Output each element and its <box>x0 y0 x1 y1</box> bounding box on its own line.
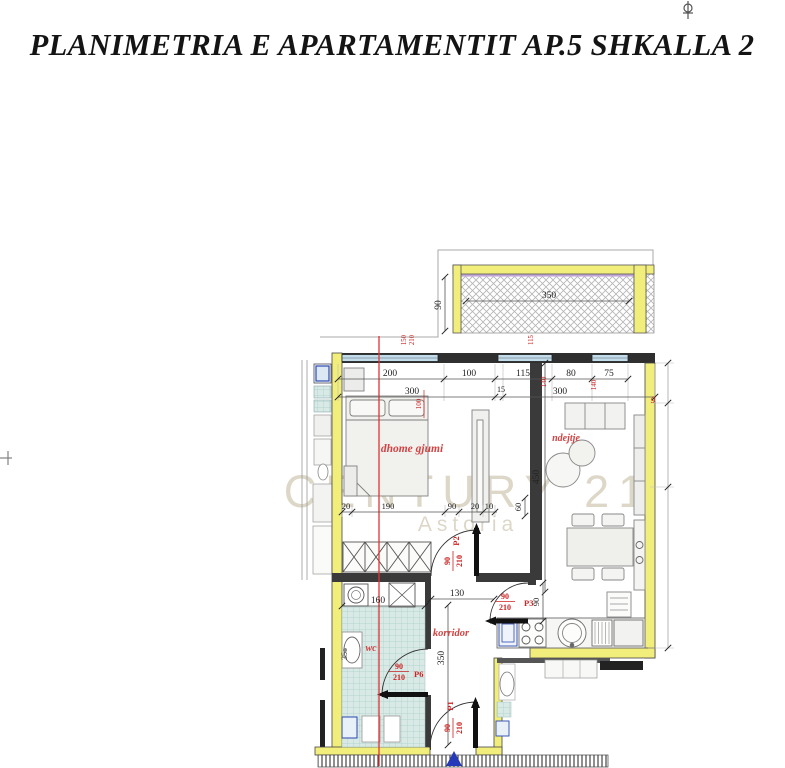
dim: 350 <box>437 651 447 666</box>
chair <box>602 568 624 580</box>
svg-text:P2: P2 <box>451 536 461 545</box>
dim: 350 <box>542 291 557 301</box>
balcony-wall-top <box>453 265 654 274</box>
window-mark: 210 <box>409 334 416 345</box>
dim: 190 <box>382 501 395 511</box>
window-mark: 140 <box>590 379 598 390</box>
dim: 160 <box>371 596 386 606</box>
dim: 90 <box>448 501 457 511</box>
dim: 35 <box>340 652 349 660</box>
dim: 300 <box>553 387 568 397</box>
room-label-corridor: korridor <box>433 628 470 639</box>
boiler-unit <box>607 592 631 617</box>
svg-text:P1: P1 <box>445 701 455 710</box>
dim: 130 <box>450 589 465 599</box>
door-label-P1: P1 90 210 <box>443 701 464 738</box>
wall-cabinet <box>634 415 645 515</box>
svg-text:90: 90 <box>443 557 452 565</box>
dining-table <box>567 528 633 566</box>
dim: 115 <box>516 369 530 379</box>
balcony-wall-left <box>453 265 461 333</box>
dim: 80 <box>566 369 576 379</box>
room-label-wc: wc <box>365 643 377 654</box>
svg-text:90: 90 <box>501 592 509 601</box>
floor-plan-page: PLANIMETRIA E APARTAMENTIT AP.5 SHKALLA … <box>0 0 785 768</box>
tall-unit <box>634 520 645 590</box>
chair <box>602 514 624 526</box>
balcony-wall-right <box>634 265 646 333</box>
dim: 300 <box>405 387 420 397</box>
room-label-bedroom: dhome gjumi <box>381 443 444 455</box>
window-mark: 140 <box>540 376 548 387</box>
floor-plan-drawing: PLANIMETRIA E APARTAMENTIT AP.5 SHKALLA … <box>0 0 785 768</box>
neighbor-unit-below <box>496 660 643 736</box>
survey-marker-left-icon <box>0 451 12 465</box>
dim: 15 <box>497 385 505 394</box>
dim: 60 <box>513 503 523 512</box>
neighbor-unit-left <box>302 360 332 748</box>
dim: 20 <box>342 501 351 511</box>
sofa <box>565 403 625 429</box>
svg-text:210: 210 <box>455 722 464 734</box>
dim: 75 <box>604 369 614 379</box>
window-mark: 150 <box>401 334 408 345</box>
svg-text:P3: P3 <box>524 598 533 608</box>
survey-marker-top-icon <box>683 1 693 19</box>
exterior-walkway-hatch <box>318 755 608 767</box>
partial-room-label: g <box>651 393 656 403</box>
svg-text:210: 210 <box>455 555 464 567</box>
page-title: PLANIMETRIA E APARTAMENTIT AP.5 SHKALLA … <box>29 28 755 62</box>
wc-room <box>342 583 425 747</box>
dim: 10 <box>485 501 494 511</box>
dim: 90 <box>434 300 444 310</box>
window-mark: 115 <box>528 334 535 345</box>
chair <box>572 568 594 580</box>
dim: 200 <box>383 369 398 379</box>
svg-text:210: 210 <box>393 673 405 682</box>
svg-text:90: 90 <box>395 662 403 671</box>
wardrobe <box>343 542 431 572</box>
dim: 20 <box>471 501 480 511</box>
pillow <box>350 400 385 416</box>
room-label-living: ndejtje <box>552 433 580 444</box>
dim: 100 <box>462 369 477 379</box>
chair <box>572 514 594 526</box>
svg-text:90: 90 <box>443 724 452 732</box>
watermark-office: Astoria <box>418 513 518 536</box>
window-mark: 100 <box>415 398 423 409</box>
dim: 450 <box>532 470 542 485</box>
door-label-P3: 90 210 P3 <box>495 592 533 612</box>
svg-text:210: 210 <box>499 603 511 612</box>
svg-text:P6: P6 <box>414 669 423 679</box>
toilet <box>342 717 357 738</box>
